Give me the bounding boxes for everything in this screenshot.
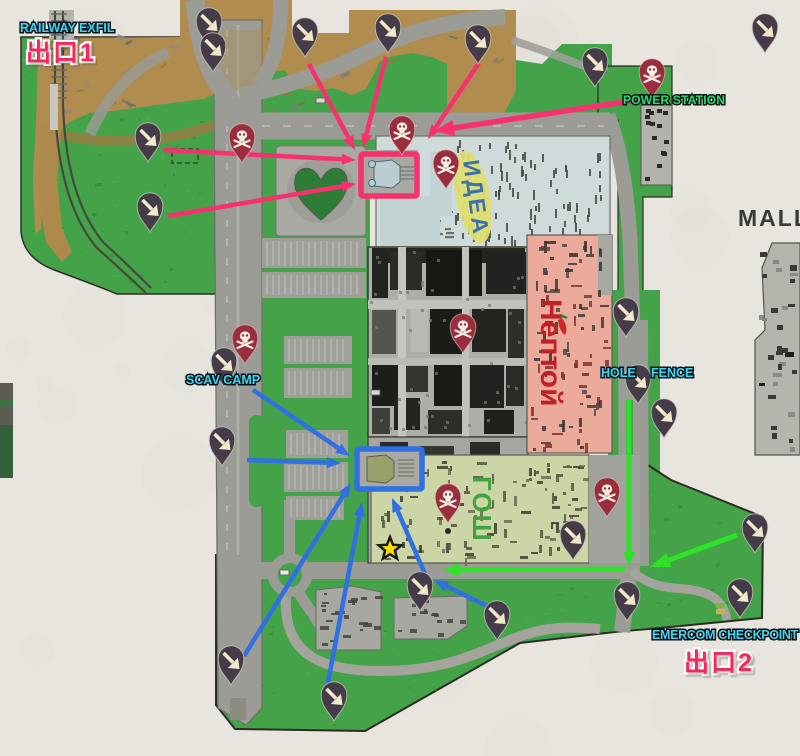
svg-text:ГОШ: ГОШ [467, 476, 497, 543]
svg-text:HOLE: HOLE [601, 366, 636, 380]
svg-text:FENCE: FENCE [651, 366, 693, 380]
svg-text:SCAV CAMP: SCAV CAMP [186, 373, 260, 387]
svg-text:POWER STATION: POWER STATION [623, 93, 725, 107]
svg-text:MALL: MALL [738, 205, 800, 231]
svg-text:EMERCOM CHECKPOINT: EMERCOM CHECKPOINT [652, 628, 799, 642]
svg-text:出口1: 出口1 [26, 39, 96, 67]
svg-text:RAILWAY EXFIL: RAILWAY EXFIL [20, 21, 115, 35]
svg-text:出口2: 出口2 [684, 649, 754, 677]
